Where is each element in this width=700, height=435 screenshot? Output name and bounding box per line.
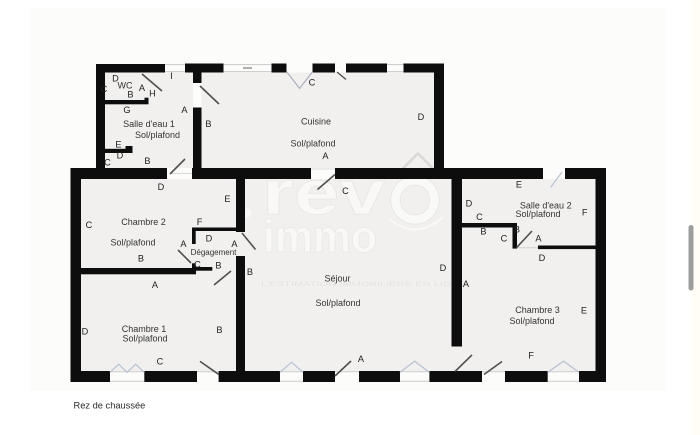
svg-text:Sol/plafond: Sol/plafond xyxy=(315,298,360,308)
svg-text:Sol/plafond: Sol/plafond xyxy=(110,238,155,248)
svg-text:A: A xyxy=(180,239,187,249)
svg-text:E: E xyxy=(224,194,230,204)
svg-text:Chambre 3: Chambre 3 xyxy=(515,305,560,315)
svg-text:B: B xyxy=(216,325,222,335)
svg-text:D: D xyxy=(112,74,119,84)
svg-text:Dégagement: Dégagement xyxy=(191,248,238,257)
svg-text:D: D xyxy=(539,253,546,263)
svg-text:D: D xyxy=(466,199,473,209)
svg-text:Sol/plafond: Sol/plafond xyxy=(122,334,167,344)
svg-text:Sol/plafond: Sol/plafond xyxy=(290,139,335,149)
svg-text:C: C xyxy=(501,234,508,244)
svg-text:E: E xyxy=(115,140,121,150)
svg-text:C: C xyxy=(86,220,93,230)
svg-text:A: A xyxy=(139,83,146,93)
svg-text:C: C xyxy=(309,78,316,88)
svg-text:Sol/plafond: Sol/plafond xyxy=(135,130,180,140)
svg-text:A: A xyxy=(322,151,329,161)
svg-text:G: G xyxy=(123,105,130,115)
svg-text:D: D xyxy=(82,327,89,337)
svg-text:C: C xyxy=(194,260,201,270)
svg-text:B: B xyxy=(480,227,486,237)
svg-text:A: A xyxy=(152,280,159,290)
svg-text:D: D xyxy=(117,151,124,161)
svg-text:Salle d'eau 1: Salle d'eau 1 xyxy=(123,119,175,129)
svg-text:B: B xyxy=(144,156,150,166)
svg-text:H: H xyxy=(149,89,156,99)
svg-text:F: F xyxy=(197,217,203,227)
svg-text:E: E xyxy=(516,180,522,190)
svg-text:Chambre 2: Chambre 2 xyxy=(121,217,166,227)
svg-text:D: D xyxy=(418,112,425,122)
svg-text:B: B xyxy=(215,261,221,271)
svg-text:B: B xyxy=(247,267,253,277)
svg-text:C: C xyxy=(476,212,483,222)
svg-text:E: E xyxy=(581,306,587,316)
svg-text:C: C xyxy=(101,84,108,94)
svg-text:C: C xyxy=(157,357,164,367)
svg-text:B: B xyxy=(205,119,211,129)
svg-text:Sol/plafond: Sol/plafond xyxy=(509,316,554,326)
svg-text:F: F xyxy=(582,208,588,218)
svg-text:A: A xyxy=(535,234,542,244)
svg-text:I: I xyxy=(170,71,173,81)
svg-text:Chambre 1: Chambre 1 xyxy=(122,324,167,334)
svg-text:Séjour: Séjour xyxy=(324,274,350,284)
svg-text:B: B xyxy=(138,254,144,264)
svg-text:A: A xyxy=(358,354,365,364)
svg-text:D: D xyxy=(206,234,213,244)
svg-text:D: D xyxy=(158,182,165,192)
svg-text:A: A xyxy=(463,279,470,289)
svg-text:F: F xyxy=(528,351,534,361)
svg-text:C: C xyxy=(104,158,111,168)
svg-text:immo: immo xyxy=(263,211,377,262)
svg-text:L'ESTIMATION IMMOBILIERE EN LI: L'ESTIMATION IMMOBILIERE EN LIGNE xyxy=(261,282,467,288)
svg-text:Cuisine: Cuisine xyxy=(301,116,331,126)
svg-text:Sol/plafond: Sol/plafond xyxy=(515,209,560,219)
svg-text:B: B xyxy=(514,225,520,235)
svg-text:B: B xyxy=(127,90,133,100)
svg-text:A: A xyxy=(181,105,188,115)
svg-text:C: C xyxy=(342,186,349,196)
svg-text:D: D xyxy=(440,263,447,273)
svg-text:A: A xyxy=(231,239,238,249)
svg-text:Rez de chaussée: Rez de chaussée xyxy=(74,401,146,411)
